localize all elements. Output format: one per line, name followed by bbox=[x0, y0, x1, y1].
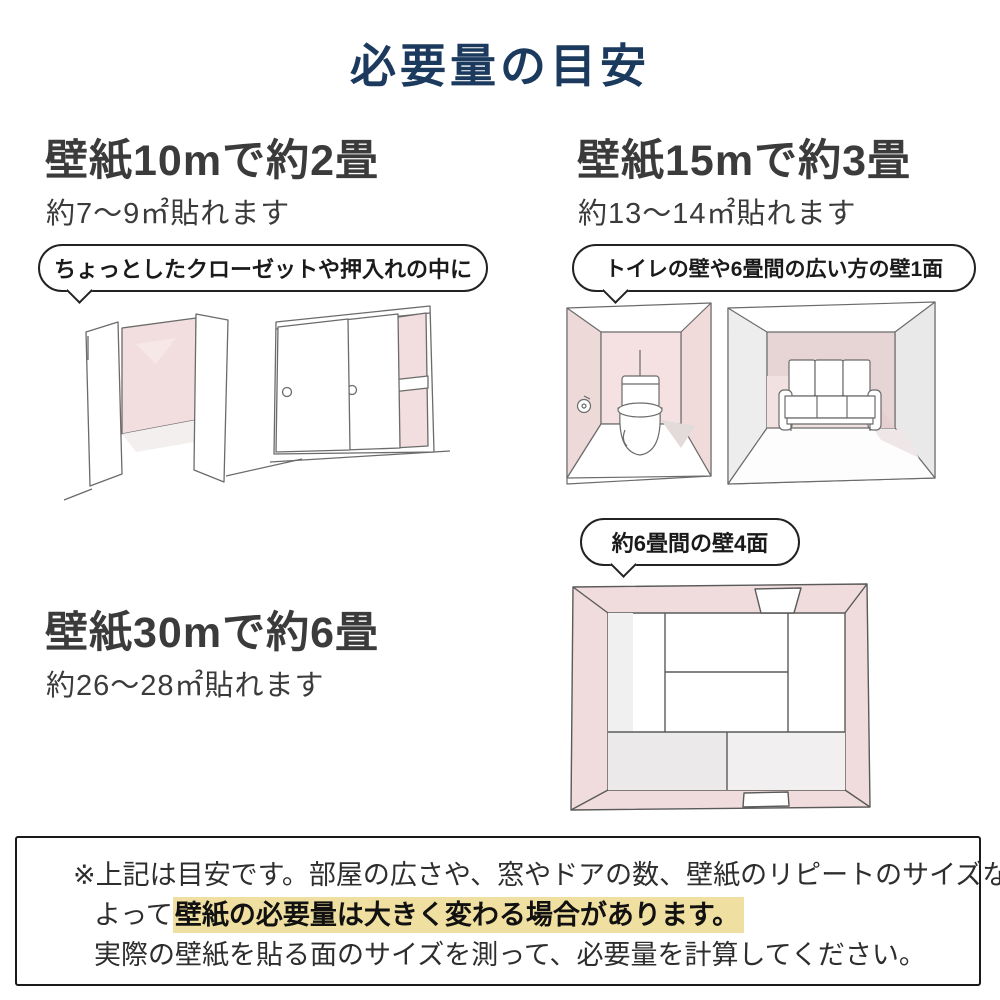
note-line-2-prefix: よって bbox=[94, 900, 173, 930]
note-line-3: 実際の壁紙を貼る面のサイズを測って、必要量を計算してください。 bbox=[73, 935, 959, 975]
sliding-closet-illustration bbox=[270, 300, 450, 490]
heading-10m: 壁紙10mで約2畳 bbox=[45, 126, 379, 188]
sofa-room-icon bbox=[723, 298, 941, 490]
wallpaper-quantity-guide: 必要量の目安 壁紙10mで約2畳 約7〜9㎡貼れます ちょっとしたクローゼットや… bbox=[0, 0, 1000, 1000]
tatami-room-top-view-icon bbox=[568, 583, 878, 815]
toilet-room-icon bbox=[563, 300, 715, 490]
heading-15m: 壁紙15mで約3畳 bbox=[577, 126, 911, 188]
note-highlighted-warning: 壁紙の必要量は大きく変わる場合があります。 bbox=[173, 897, 744, 933]
sofa-room-illustration bbox=[723, 298, 941, 495]
open-closet-icon bbox=[64, 302, 304, 512]
heading-30m: 壁紙30mで約6畳 bbox=[45, 598, 379, 660]
page-title: 必要量の目安 bbox=[0, 30, 1000, 96]
bubble-toilet-wall-usage: トイレの壁や6畳間の広い方の壁1面 bbox=[572, 244, 976, 292]
subheading-10m: 約7〜9㎡貼れます bbox=[46, 190, 290, 232]
note-line-1: ※上記は目安です。部屋の広さや、窓やドアの数、壁紙のリピートのサイズなどに bbox=[73, 855, 959, 895]
subheading-15m: 約13〜14㎡貼れます bbox=[578, 190, 857, 232]
sliding-closet-icon bbox=[270, 300, 450, 485]
disclaimer-note-box: ※上記は目安です。部屋の広さや、窓やドアの数、壁紙のリピートのサイズなどに よっ… bbox=[15, 836, 981, 986]
subheading-30m: 約26〜28㎡貼れます bbox=[46, 662, 325, 704]
bubble-closet-usage: ちょっとしたクローゼットや押入れの中に bbox=[38, 244, 488, 292]
tatami-room-illustration bbox=[568, 583, 878, 820]
bubble-four-walls-usage: 約6畳間の壁4面 bbox=[580, 518, 800, 566]
toilet-room-illustration bbox=[563, 300, 715, 495]
note-line-2: よって壁紙の必要量は大きく変わる場合があります。 bbox=[73, 895, 959, 935]
open-closet-illustration bbox=[64, 302, 304, 517]
